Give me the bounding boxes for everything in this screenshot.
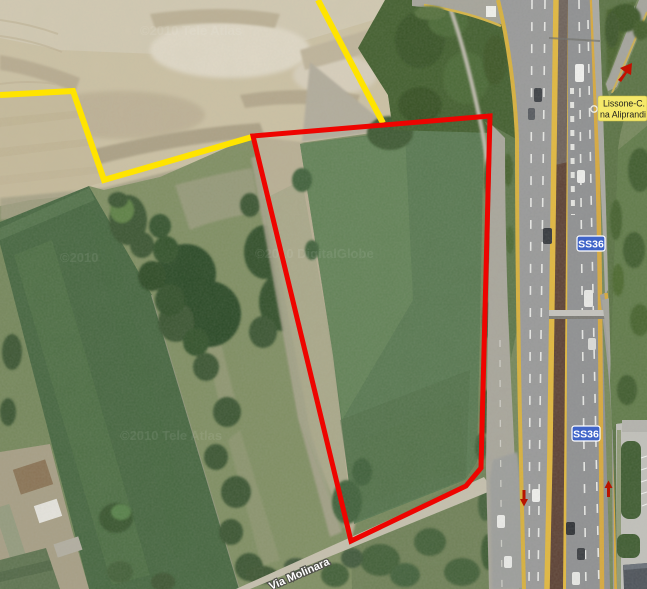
svg-text:Lissone-C.: Lissone-C. xyxy=(603,99,645,110)
svg-text:©2010 Tele Atlas: ©2010 Tele Atlas xyxy=(120,428,222,443)
svg-text:©2010: ©2010 xyxy=(60,250,99,265)
svg-text:SS36: SS36 xyxy=(573,429,599,441)
svg-text:na Aliprandi: na Aliprandi xyxy=(600,110,646,121)
svg-text:©2010 DigitalGlobe: ©2010 DigitalGlobe xyxy=(255,246,374,261)
svg-text:©2010 Tele Atlas: ©2010 Tele Atlas xyxy=(140,23,242,38)
svg-text:SS36: SS36 xyxy=(578,239,604,251)
